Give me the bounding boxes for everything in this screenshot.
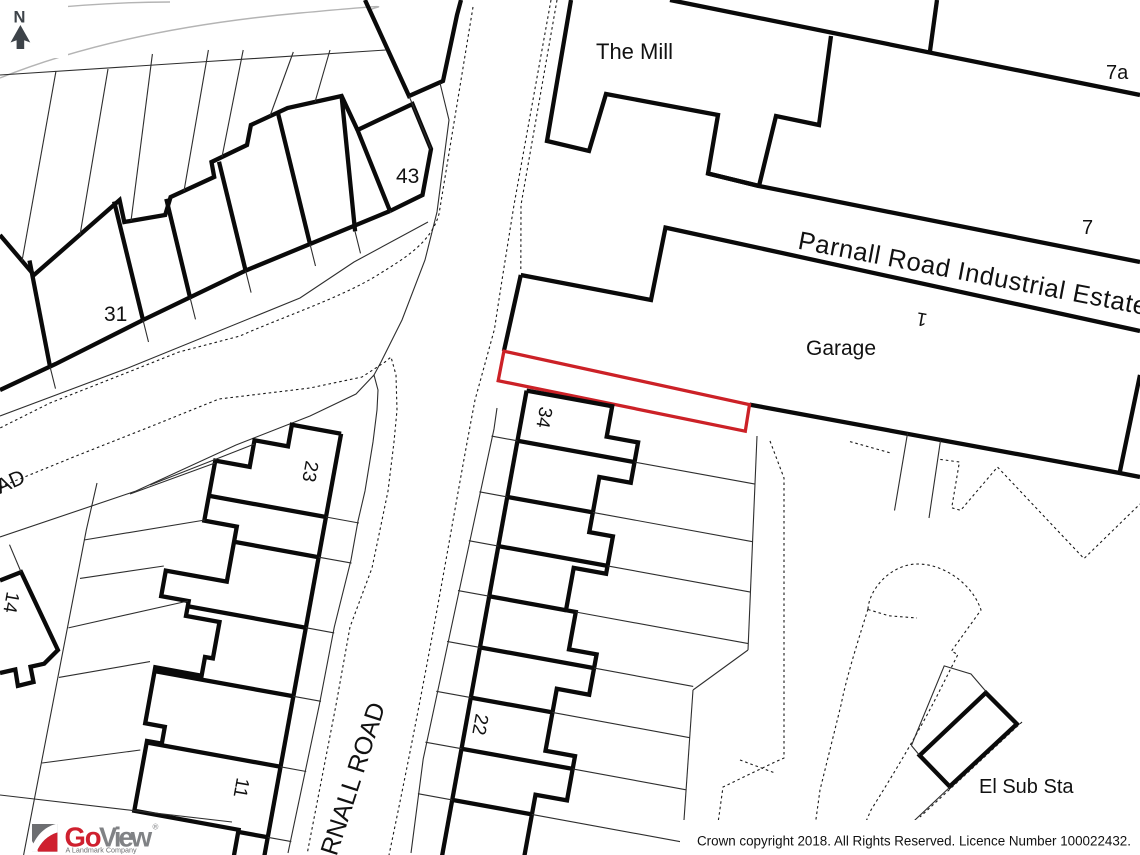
svg-text:7a: 7a	[1106, 62, 1129, 84]
svg-text:El Sub Sta: El Sub Sta	[979, 776, 1074, 798]
svg-text:®: ®	[153, 823, 159, 832]
svg-text:14: 14	[0, 590, 23, 615]
svg-text:7: 7	[1082, 217, 1093, 239]
svg-text:43: 43	[396, 165, 419, 188]
svg-text:34: 34	[531, 405, 556, 430]
svg-text:N: N	[14, 9, 26, 27]
svg-text:11: 11	[229, 776, 253, 799]
svg-text:The Mill: The Mill	[596, 39, 673, 64]
svg-text:Garage: Garage	[806, 337, 876, 360]
svg-text:31: 31	[104, 303, 127, 326]
svg-text:Crown copyright 2018. All Righ: Crown copyright 2018. All Rights Reserve…	[697, 834, 1131, 849]
svg-text:23: 23	[297, 459, 321, 484]
svg-text:A Landmark Company: A Landmark Company	[66, 846, 138, 855]
svg-text:22: 22	[467, 712, 491, 737]
